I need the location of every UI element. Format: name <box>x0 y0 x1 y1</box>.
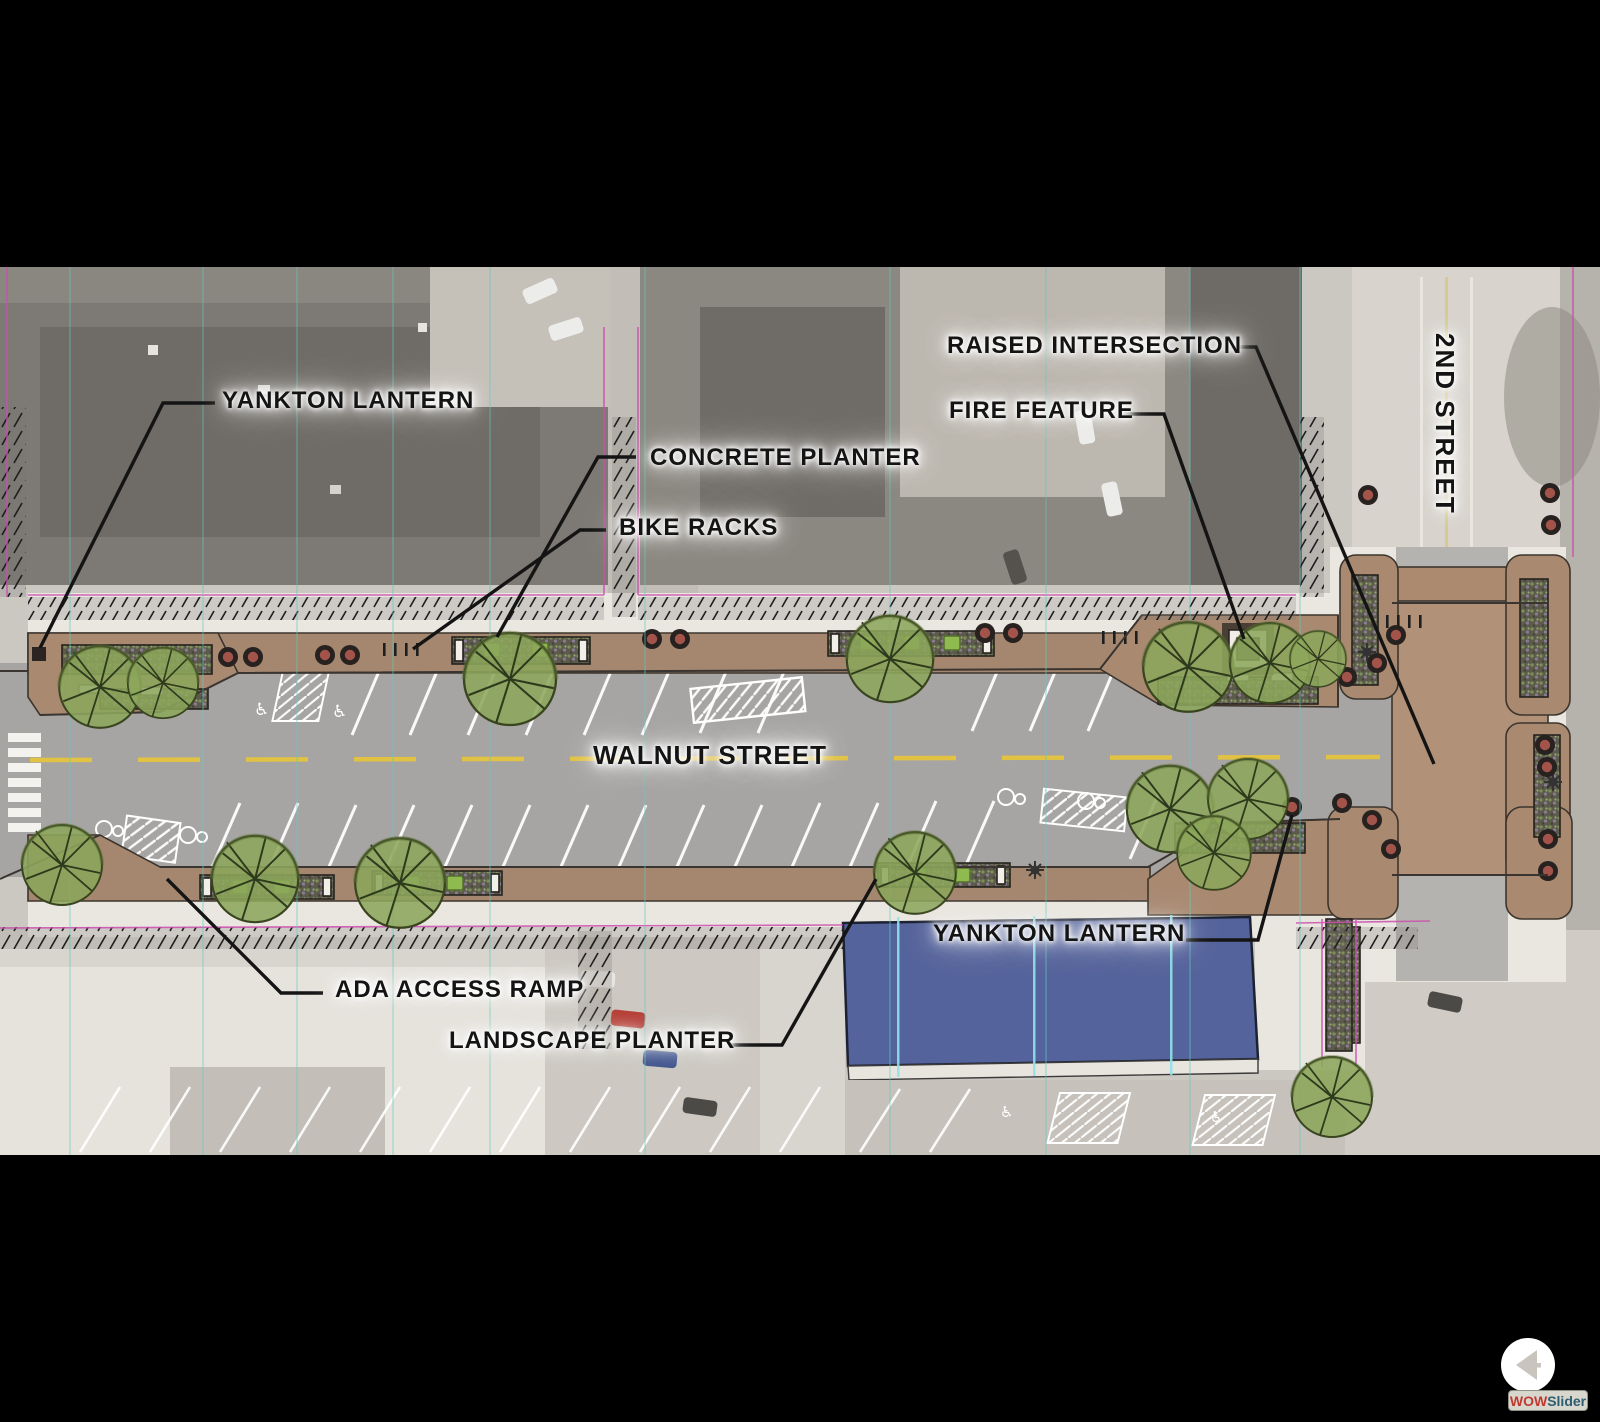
lantern-symbol <box>32 647 46 661</box>
letterbox-bottom <box>0 1155 1600 1422</box>
slider-prev-button[interactable] <box>1500 1337 1556 1393</box>
label-fire-feature: FIRE FEATURE <box>949 399 1134 423</box>
label-yankton-lantern-top: YANKTON LANTERN <box>222 389 474 413</box>
label-landscape-planter: LANDSCAPE PLANTER <box>449 1029 735 1053</box>
slide-stage: ♿ ♿ <box>0 0 1600 1422</box>
label-second-street: 2ND STREET <box>1432 333 1458 515</box>
wowslider-watermark[interactable]: WOWSlider <box>1508 1390 1588 1411</box>
label-yankton-lantern-bottom: YANKTON LANTERN <box>933 922 1185 946</box>
left-arrow-icon <box>1500 1337 1556 1393</box>
label-ada-access-ramp: ADA ACCESS RAMP <box>335 978 584 1002</box>
svg-text:♿: ♿ <box>254 700 269 720</box>
letterbox-top <box>0 0 1600 267</box>
svg-text:♿: ♿ <box>332 702 347 722</box>
label-walnut-street: WALNUT STREET <box>593 742 827 768</box>
label-concrete-planter: CONCRETE PLANTER <box>650 446 921 470</box>
svg-text:♿: ♿ <box>1000 1103 1013 1121</box>
crosswalk-north-paver <box>1396 567 1508 601</box>
label-raised-intersection: RAISED INTERSECTION <box>947 334 1242 358</box>
label-bike-racks: BIKE RACKS <box>619 516 778 540</box>
watermark-wow: WOW <box>1510 1394 1547 1408</box>
svg-text:♿: ♿ <box>1210 1108 1223 1126</box>
watermark-slider: Slider <box>1547 1394 1586 1408</box>
